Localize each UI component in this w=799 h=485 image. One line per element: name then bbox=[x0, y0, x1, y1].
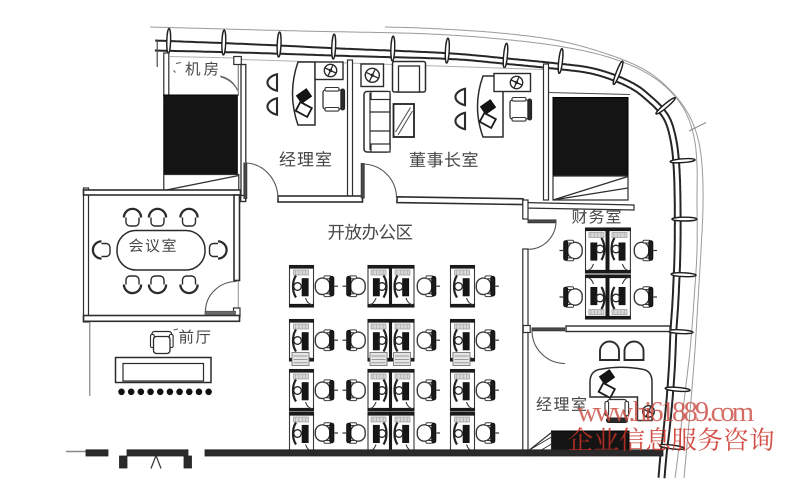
svg-text:www.hi61889.com: www.hi61889.com bbox=[577, 397, 754, 428]
